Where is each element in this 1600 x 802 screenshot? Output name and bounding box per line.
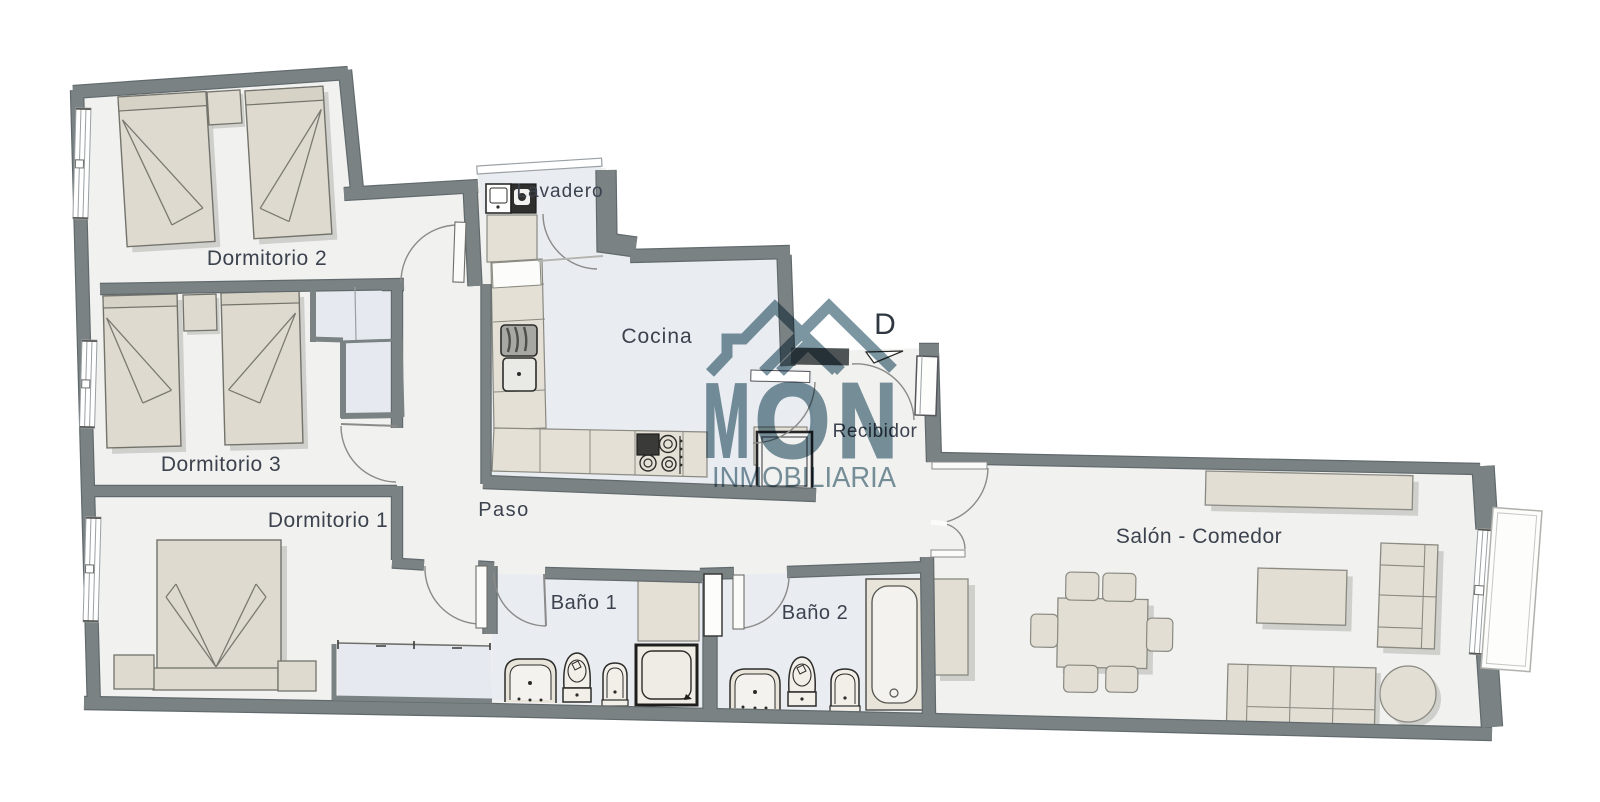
svg-text:Dormitorio 3: Dormitorio 3	[161, 453, 281, 476]
svg-text:Baño 2: Baño 2	[782, 602, 848, 624]
svg-text:Lavadero: Lavadero	[516, 181, 603, 202]
svg-text:Dormitorio 2: Dormitorio 2	[207, 247, 327, 270]
svg-text:Paso: Paso	[478, 499, 530, 521]
svg-text:D: D	[874, 308, 896, 341]
svg-text:INMOBILIARIA: INMOBILIARIA	[712, 462, 897, 494]
svg-text:Baño 1: Baño 1	[551, 592, 617, 614]
svg-text:Salón - Comedor: Salón - Comedor	[1116, 525, 1282, 548]
svg-text:Cocina: Cocina	[621, 325, 692, 348]
svg-text:Dormitorio 1: Dormitorio 1	[268, 509, 388, 532]
